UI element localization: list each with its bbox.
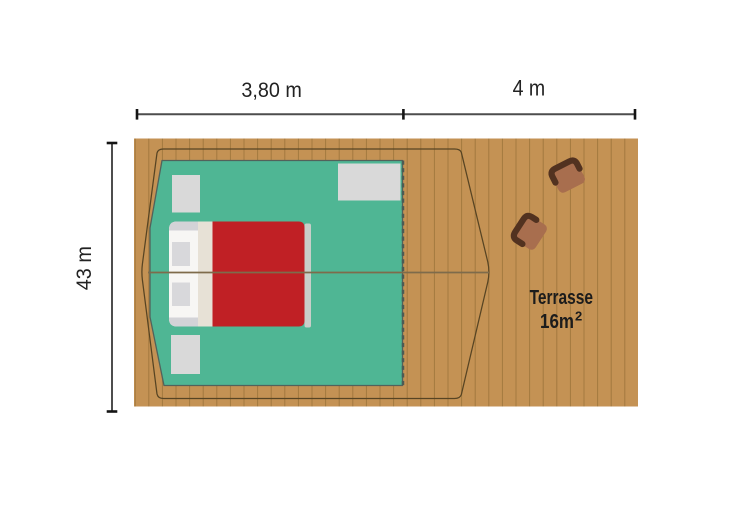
svg-text:2: 2 <box>575 309 582 324</box>
svg-text:4 m: 4 m <box>513 76 546 101</box>
svg-text:Terrasse: Terrasse <box>530 286 593 309</box>
svg-text:43 m: 43 m <box>73 246 96 290</box>
svg-text:3,80 m: 3,80 m <box>241 79 302 102</box>
svg-text:16m: 16m <box>540 310 574 333</box>
